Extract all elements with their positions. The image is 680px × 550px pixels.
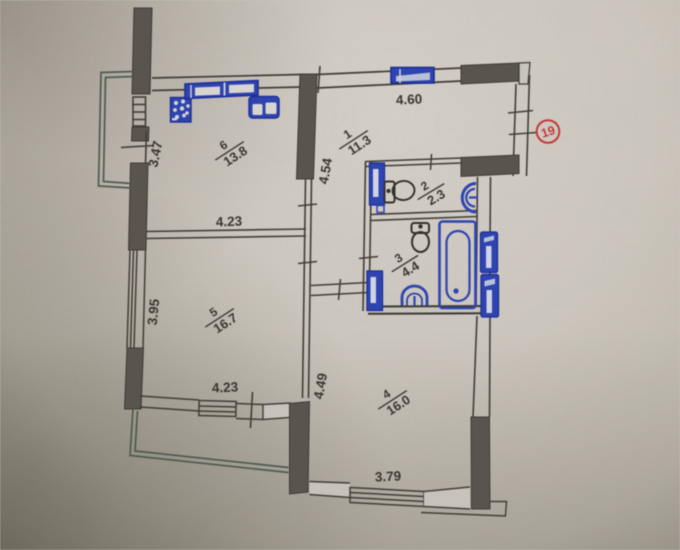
svg-text:4.23: 4.23: [216, 214, 243, 230]
svg-text:3.95: 3.95: [145, 298, 163, 326]
svg-text:3.79: 3.79: [375, 468, 402, 484]
svg-text:4.23: 4.23: [212, 379, 240, 395]
svg-text:4.60: 4.60: [396, 91, 423, 107]
